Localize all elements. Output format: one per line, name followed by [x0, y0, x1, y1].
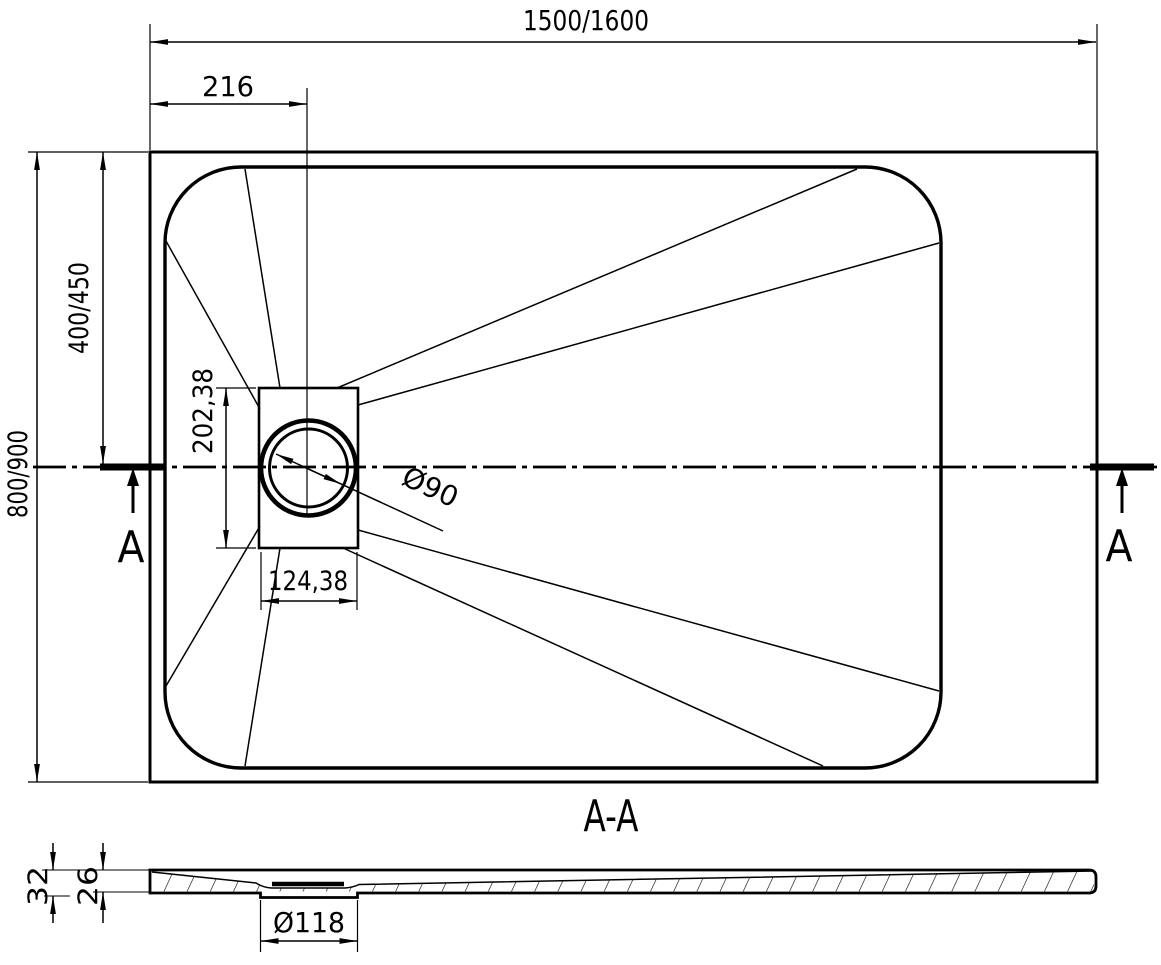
dim-overall-width: 1500/1600	[150, 4, 1097, 150]
dim-total-height-label: 32	[23, 866, 54, 906]
dim-drain-hole-label: Ø118	[273, 906, 345, 939]
dim-drain-hole: Ø118	[261, 900, 358, 952]
dim-drain-diameter: Ø90	[276, 454, 464, 531]
section-marker-left: A	[118, 468, 145, 573]
section-arrow-left	[127, 468, 139, 486]
section-marker-left-label: A	[118, 522, 145, 573]
dim-drain-box-height-label: 202,38	[188, 368, 219, 454]
dim-drain-box-height: 202,38	[188, 368, 256, 548]
dim-drain-offset-label: 216	[202, 70, 254, 103]
dim-overall-width-label: 1500/1600	[523, 4, 649, 37]
dim-drain-center: 400/450	[64, 152, 103, 464]
section-view: A-A Ø118 32 26	[23, 791, 1096, 952]
technical-drawing-page: A A 1500/1600 216 800/900	[0, 0, 1161, 965]
dim-drain-offset: 216	[150, 70, 307, 104]
dim-overall-depth-label: 800/900	[3, 430, 34, 518]
shower-tray-drawing: A A 1500/1600 216 800/900	[0, 0, 1161, 965]
dim-drain-box-width-label: 124,38	[268, 566, 348, 597]
dim-drain-center-label: 400/450	[64, 262, 95, 354]
plan-view: A A 1500/1600 216 800/900	[3, 4, 1157, 782]
dim-rim-height: 26	[73, 843, 151, 923]
section-marker-right: A	[1106, 468, 1133, 572]
section-marker-right-label: A	[1106, 521, 1133, 572]
section-arrow-right	[1116, 468, 1128, 486]
dim-rim-height-label: 26	[73, 866, 104, 906]
dim-drain-box-width: 124,38	[261, 552, 357, 610]
section-title: A-A	[584, 791, 639, 842]
